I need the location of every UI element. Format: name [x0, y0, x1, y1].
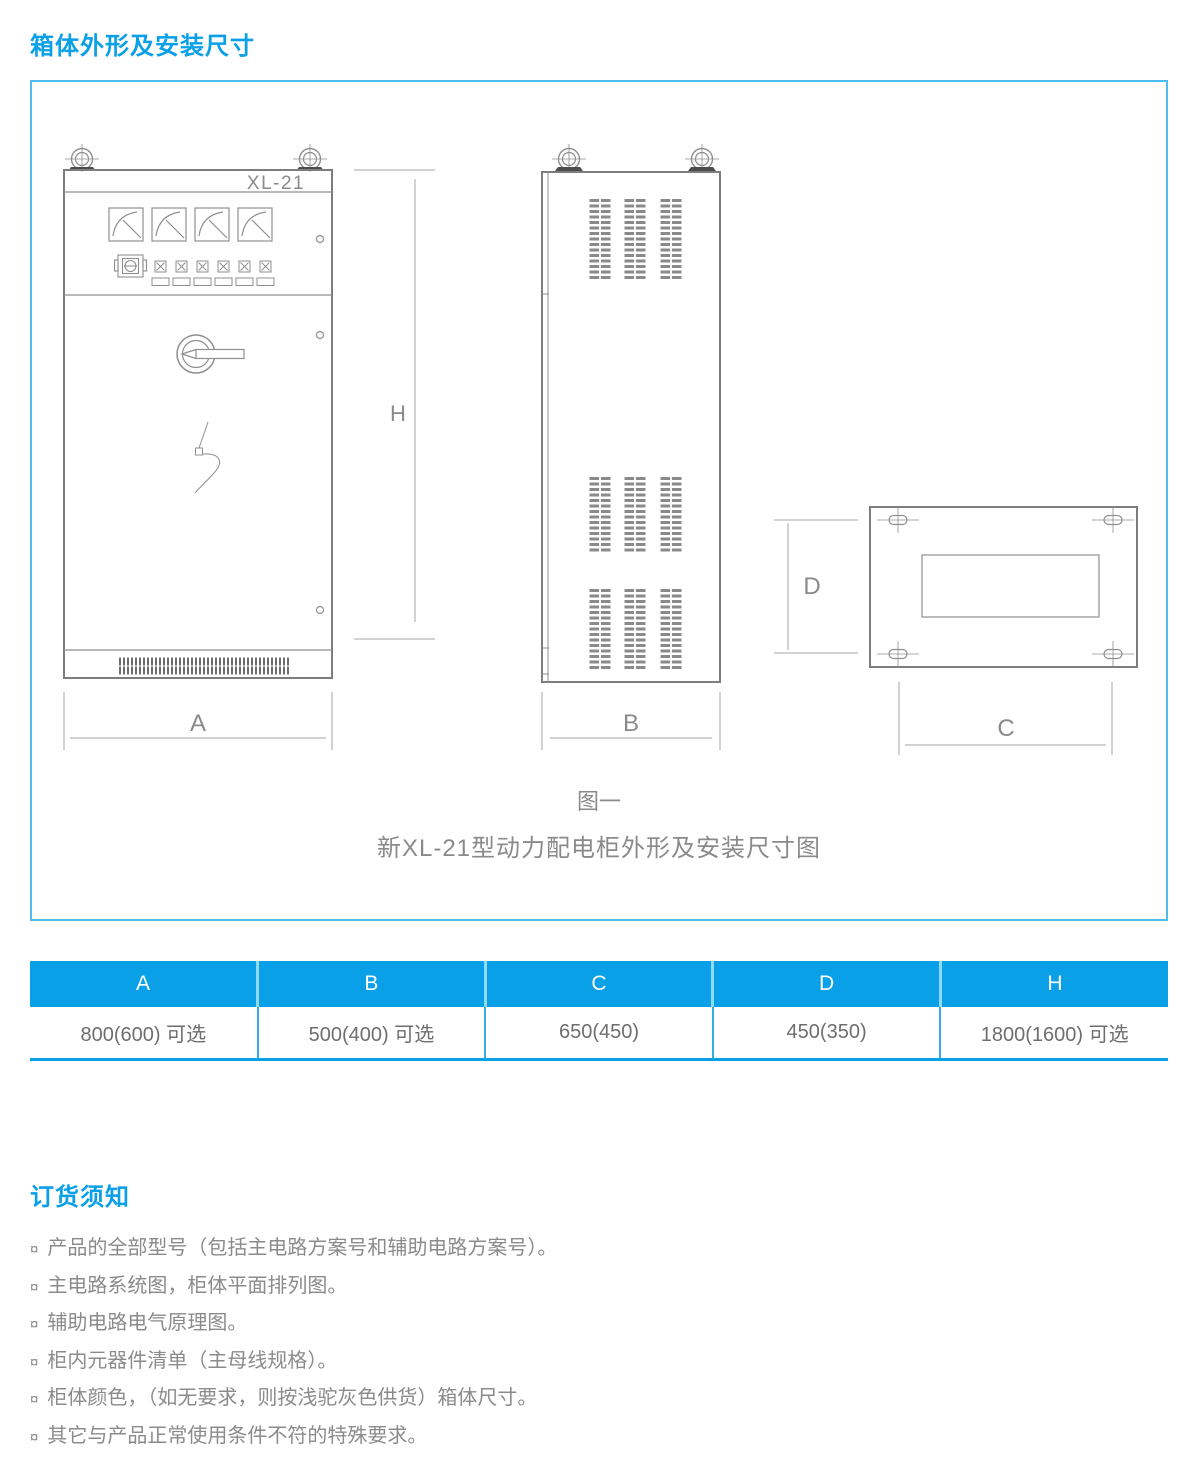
dimension-d: D [774, 520, 858, 653]
mounting-slot-icon [877, 641, 919, 667]
list-item-text: 柜体颜色，（如无要求，则按浅驼灰色供货）箱体尺寸。 [47, 1387, 537, 1411]
list-item-text: 产品的全部型号（包括主电路方案号和辅助电路方案号）。 [47, 1237, 557, 1261]
meter-icon [109, 208, 143, 241]
front-view: XL-21 [64, 144, 332, 678]
dimension-table: A B C D H 800(600) 可选 500(400) 可选 650(45… [30, 961, 1168, 1061]
value-a: 800(600) 可选 [30, 1007, 258, 1060]
door-hole-icon [317, 332, 324, 339]
ordering-list: ¤ 产品的全部型号（包括主电路方案号和辅助电路方案号）。 ¤ 主电路系统图，柜体… [30, 1237, 1168, 1449]
value-d: 450(350) [713, 1007, 941, 1060]
column-header-c: C [485, 961, 713, 1007]
lifting-eye-icon [552, 144, 586, 172]
list-item: ¤ 其它与产品正常使用条件不符的特殊要求。 [30, 1425, 1168, 1449]
value-h: 1800(1600) 可选 [940, 1007, 1168, 1060]
technical-drawing: XL-21 [32, 82, 1166, 772]
list-item: ¤ 柜内元器件清单（主母线规格）。 [30, 1350, 1168, 1374]
catalog-page: 箱体外形及安装尺寸 [30, 0, 1168, 1449]
panel-switch-icon [115, 255, 147, 277]
list-item: ¤ 辅助电路电气原理图。 [30, 1312, 1168, 1336]
figure-number: 图一 [32, 784, 1166, 816]
lifting-eye-icon [65, 144, 99, 172]
side-vent-seams [600, 199, 671, 669]
value-b: 500(400) 可选 [258, 1007, 486, 1060]
dim-a-label: A [190, 710, 206, 737]
list-item: ¤ 产品的全部型号（包括主电路方案号和辅助电路方案号）。 [30, 1237, 1168, 1261]
table-row: 800(600) 可选 500(400) 可选 650(450) 450(350… [30, 1007, 1168, 1060]
lifting-eye-icon [685, 144, 719, 172]
column-header-a: A [30, 961, 258, 1007]
bullet-icon: ¤ [30, 1429, 38, 1447]
dim-b-label: B [623, 710, 639, 737]
table-header-row: A B C D H [30, 961, 1168, 1007]
indicator-lamp-icon [218, 261, 229, 272]
bullet-icon: ¤ [30, 1316, 38, 1334]
mounting-slot-icon [1092, 641, 1134, 667]
column-header-b: B [258, 961, 486, 1007]
door-hole-icon [317, 607, 324, 614]
column-header-d: D [713, 961, 941, 1007]
lightning-icon [195, 422, 220, 493]
indicator-lamp-icon [155, 261, 166, 272]
figure-caption: 新XL-21型动力配电柜外形及安装尺寸图 [32, 828, 1166, 863]
lifting-eye-icon [293, 144, 327, 172]
meter-icon [238, 208, 272, 241]
side-view [542, 144, 720, 682]
ordering-title: 订货须知 [30, 1177, 1168, 1212]
indicator-lamp-icon [260, 261, 271, 272]
diagram-panel: XL-21 [30, 80, 1168, 921]
list-item-text: 柜内元器件清单（主母线规格）。 [47, 1350, 337, 1374]
dimension-h: H [354, 170, 435, 639]
mounting-slot-icon [877, 507, 919, 533]
cabinet-front-outline [64, 170, 332, 678]
list-item-text: 辅助电路电气原理图。 [47, 1312, 247, 1336]
mounting-slot-icon [1092, 507, 1134, 533]
list-item-text: 主电路系统图，柜体平面排列图。 [47, 1275, 347, 1299]
bullet-icon: ¤ [30, 1391, 38, 1409]
dim-c-label: C [997, 715, 1014, 742]
door-handle-icon [177, 335, 244, 373]
column-header-h: H [940, 961, 1168, 1007]
dim-h-label: H [390, 401, 406, 426]
meter-icon [152, 208, 186, 241]
indicator-lamp-icon [239, 261, 250, 272]
list-item: ¤ 主电路系统图，柜体平面排列图。 [30, 1275, 1168, 1299]
door-hole-icon [317, 236, 324, 243]
dim-d-label: D [803, 573, 820, 600]
list-item: ¤ 柜体颜色，（如无要求，则按浅驼灰色供货）箱体尺寸。 [30, 1387, 1168, 1411]
bullet-icon: ¤ [30, 1354, 38, 1372]
list-item-text: 其它与产品正常使用条件不符的特殊要求。 [47, 1425, 427, 1449]
dimension-c: C [899, 682, 1112, 755]
dimension-a: A [64, 692, 332, 750]
base-outline [870, 507, 1137, 667]
bullet-icon: ¤ [30, 1279, 38, 1297]
label-strips [152, 278, 274, 286]
page-title: 箱体外形及安装尺寸 [30, 0, 1168, 61]
model-label: XL-21 [247, 173, 305, 194]
indicator-lamp-icon [176, 261, 187, 272]
value-c: 650(450) [485, 1007, 713, 1060]
dimension-b: B [542, 692, 720, 750]
vent-grille [119, 662, 289, 671]
cable-opening [922, 555, 1099, 617]
indicator-lamp-icon [197, 261, 208, 272]
meter-icon [195, 208, 229, 241]
top-view [870, 507, 1137, 667]
bullet-icon: ¤ [30, 1241, 38, 1259]
